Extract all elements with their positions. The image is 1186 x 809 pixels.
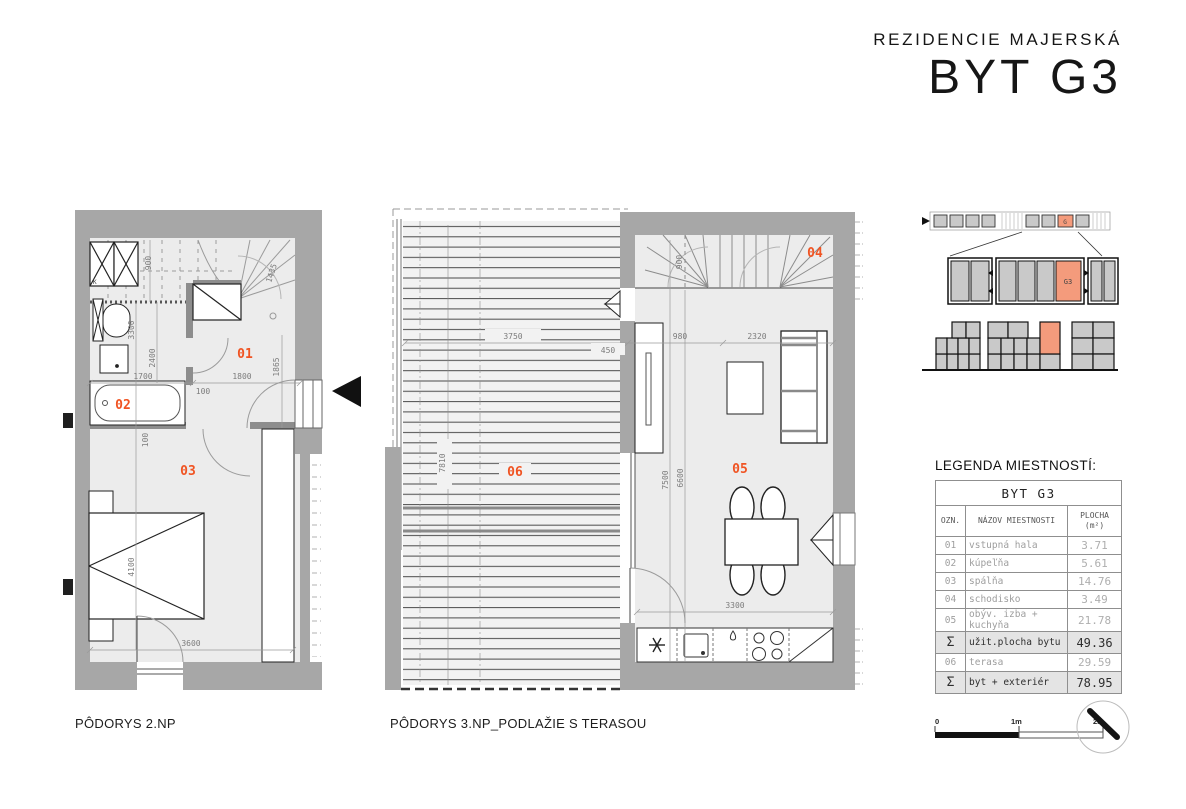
dim-980: 980 [673,332,688,341]
washer-label: K [93,279,97,286]
legend-col-name: NÁZOV MIESTNOSTI [966,506,1068,537]
bathtub [90,381,185,425]
dim-7810: 7810 [438,453,447,472]
dim-7500: 7500 [661,470,670,489]
wardrobe-hall [193,284,241,320]
room-label-01: 01 [237,347,253,362]
dim-1800: 1800 [232,372,251,381]
entrance-arrow [332,376,361,407]
apartment-title: BYT G3 [873,54,1122,102]
legend-row-02: 02 kúpeľňa 5.61 [936,555,1122,573]
wardrobe-bedroom [262,429,294,662]
dining-table [725,519,798,565]
terrace-glazing [631,453,635,568]
legend-table-title: BYT G3 [936,481,1122,506]
elevation-diagram [922,322,1118,370]
sink-cabinet [100,345,128,373]
site-plan-diagram: G [922,212,1110,230]
bed [89,513,204,619]
drawing-sheet: REZIDENCIE MAJERSKÁ BYT G3 [0,0,1186,809]
legend-row-sum-flat: Σ užit.plocha bytu 49.36 [936,632,1122,654]
party-wall-hatch-3np-b [855,625,863,685]
room-label-04: 04 [807,246,823,261]
living-floor [635,235,833,662]
legend-col-ozn: OZN. [936,506,966,537]
dim-6600: 6600 [676,468,685,487]
room-label-06: 06 [507,465,523,480]
zoom-line-left [950,232,1022,256]
project-title: REZIDENCIE MAJERSKÁ [873,30,1122,50]
compass-needle-icon [1090,711,1117,737]
tv-cabinet [635,323,663,453]
dim-1865: 1865 [272,357,281,376]
sofa [781,331,827,443]
legend-row-05: 05 obýv. izba + kuchyňa 21.78 [936,609,1122,632]
location-diagrams: G G3 [920,200,1120,380]
zoom-line-right [1078,232,1102,256]
dim-3300: 3300 [127,320,136,339]
party-wall-hatch [312,457,321,657]
dim-3750: 3750 [503,332,522,341]
row-unit-label: G3 [1064,278,1072,286]
floorplan-2np: K [60,195,370,755]
room-label-03: 03 [180,464,196,479]
dim-100b: 100 [141,433,150,448]
dim-3300b: 3300 [725,601,744,610]
room-label-05: 05 [732,462,748,477]
dim-1700: 1700 [133,372,152,381]
kitchen-counter [637,628,833,662]
legend-table: BYT G3 OZN. NÁZOV MIESTNOSTI PLOCHA (m²)… [935,480,1122,694]
legend-row-06: 06 terasa 29.59 [936,654,1122,672]
legend-heading: LEGENDA MIESTNOSTÍ: [935,458,1121,473]
dim-450: 450 [601,346,616,355]
room-label-02: 02 [115,398,131,413]
terrace-decking [403,221,620,685]
legend-col-area: PLOCHA (m²) [1068,506,1122,537]
site-arrow-icon [922,217,930,225]
party-wall-hatch-3np [855,217,863,307]
dim-4100: 4100 [127,557,136,576]
sink-icon [684,634,708,657]
scale-0: 0 [935,717,939,726]
legend-row-03: 03 spálňa 14.76 [936,573,1122,591]
washer-dryer [90,242,138,286]
dim-900b: 900 [675,255,684,270]
adjacent-unit-marks [63,413,73,595]
legend-row-sum-total: Σ byt + exteriér 78.95 [936,672,1122,694]
caption-plan2: PÔDORYS 2.NP [75,716,176,731]
dim-2400: 2400 [148,348,157,367]
north-indicator [1070,696,1140,760]
dim-900: 900 [144,256,153,271]
floorplan-3np: 3750 450 7810 900 980 2320 7500 6600 330… [385,195,865,755]
dim-3600: 3600 [181,639,200,648]
elevation-unit-highlight [1040,322,1060,354]
caption-plan3: PÔDORYS 3.NP_PODLAŽIE S TERASOU [390,716,647,731]
floor-row-diagram: G3 [948,258,1118,304]
legend: LEGENDA MIESTNOSTÍ: BYT G3 OZN. NÁZOV MI… [935,458,1121,694]
coffee-table [727,362,763,414]
site-unit-label: G [1063,219,1067,226]
title-block: REZIDENCIE MAJERSKÁ BYT G3 [873,30,1122,102]
dim-100a: 100 [196,387,211,396]
legend-row-01: 01 vstupná hala 3.71 [936,537,1122,555]
scale-1m: 1m [1011,717,1022,726]
terrace [385,209,628,692]
dim-2320: 2320 [747,332,766,341]
legend-row-04: 04 schodisko 3.49 [936,591,1122,609]
